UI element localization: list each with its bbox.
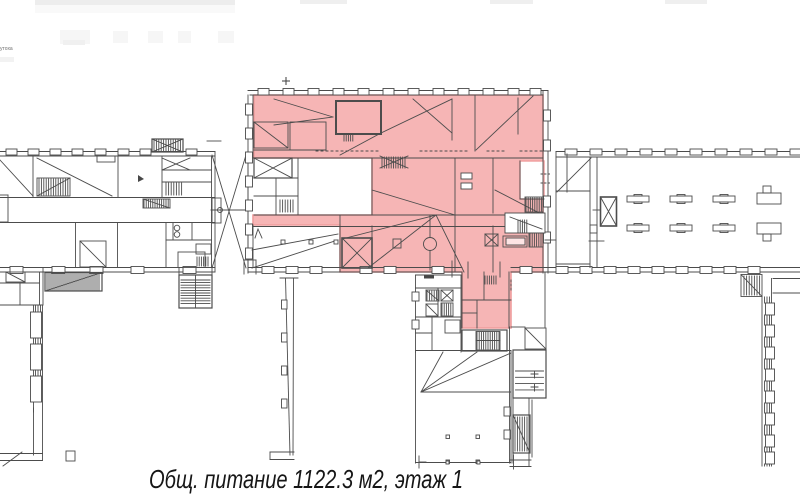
svg-text:утоха: утоха	[0, 46, 13, 52]
svg-text:Общ. питание 1122.3 м2, этаж 1: Общ. питание 1122.3 м2, этаж 1	[149, 464, 463, 494]
